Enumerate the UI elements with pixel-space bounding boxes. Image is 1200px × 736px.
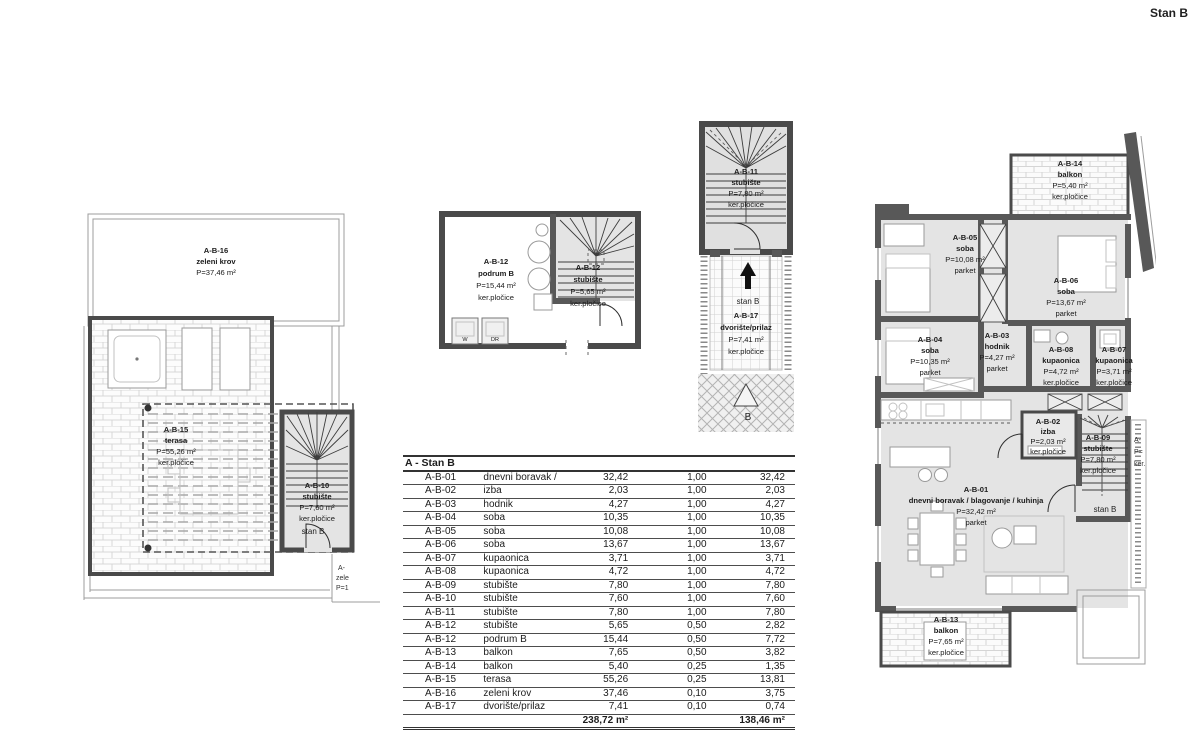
floor-plan-apartment: A-B-14 balkon P=5,40 m² ker.pločice xyxy=(862,128,1156,668)
svg-text:ker.pločice: ker.pločice xyxy=(928,648,964,657)
svg-text:A-: A- xyxy=(338,565,346,572)
svg-text:P=10,35 m²: P=10,35 m² xyxy=(910,357,950,366)
svg-text:A-B-02: A-B-02 xyxy=(1036,417,1060,426)
balcony-bottom: A-B-13 balkon P=7,65 m² ker.pločice xyxy=(881,612,1010,666)
svg-text:stubište: stubište xyxy=(302,492,331,501)
table-row: A-B-10stubište7,601,007,60 xyxy=(403,593,795,607)
svg-text:parket: parket xyxy=(986,364,1008,373)
table-row: A-B-02izba2,031,002,03 xyxy=(403,485,795,499)
table-row: A-B-12podrum B15,440,507,72 xyxy=(403,633,795,647)
svg-text:A-B-11: A-B-11 xyxy=(734,167,759,176)
svg-text:terasa: terasa xyxy=(165,436,188,445)
svg-text:A-B-12: A-B-12 xyxy=(484,257,508,266)
unit-marker: stan B xyxy=(302,527,325,536)
svg-text:stubište: stubište xyxy=(1083,444,1112,453)
terrace-area xyxy=(90,318,272,574)
svg-text:P=15,44 m²: P=15,44 m² xyxy=(476,281,516,290)
table-header-row: A - Stan B xyxy=(403,456,795,471)
floor-plan-basement: W DR A-B-12 podrum B P=15,44 m² ker.ploč… xyxy=(438,206,644,358)
dryer-box: DR xyxy=(482,318,508,344)
floor-plan-entrance: A-B-11 stubište P=7,80 m² ker.pločice st… xyxy=(696,116,796,440)
table-title: A - Stan B xyxy=(403,456,795,471)
room-label-green-roof: A-B-16 zeleni krov P=37,46 m² xyxy=(196,246,236,277)
svg-text:P=7,65 m²: P=7,65 m² xyxy=(928,637,964,646)
svg-text:A-B-01: A-B-01 xyxy=(964,485,989,494)
table-row: A-B-09stubište7,801,007,80 xyxy=(403,579,795,593)
svg-text:P=1: P=1 xyxy=(336,585,349,592)
svg-text:ker.pločice: ker.pločice xyxy=(728,347,764,356)
total-area: 238,72 m² xyxy=(560,714,638,729)
svg-text:ker.pločice: ker.pločice xyxy=(570,299,606,308)
svg-text:izba: izba xyxy=(1041,427,1057,436)
anchor-dot xyxy=(145,405,152,412)
svg-text:A-B-03: A-B-03 xyxy=(985,331,1009,340)
svg-text:W: W xyxy=(462,337,468,343)
table-row: A-B-13balkon7,650,503,82 xyxy=(403,647,795,661)
svg-text:ker.pločice: ker.pločice xyxy=(1096,378,1132,387)
table-row: A-B-15terasa55,260,2513,81 xyxy=(403,674,795,688)
svg-text:ker.pločice: ker.pločice xyxy=(1052,192,1088,201)
svg-text:parket: parket xyxy=(1055,309,1077,318)
svg-text:hodnik: hodnik xyxy=(985,342,1011,351)
svg-text:P=7,60 m²: P=7,60 m² xyxy=(299,503,335,512)
unit-marker: stan B xyxy=(1094,505,1117,514)
svg-text:A-B-05: A-B-05 xyxy=(953,233,978,242)
street-area: B xyxy=(698,374,794,432)
svg-text:balkon: balkon xyxy=(934,626,959,635)
svg-text:P=4,27 m²: P=4,27 m² xyxy=(979,353,1015,362)
svg-text:P=: P= xyxy=(1134,449,1143,456)
svg-text:P=7,80 m²: P=7,80 m² xyxy=(728,189,764,198)
svg-text:A-B-13: A-B-13 xyxy=(934,615,958,624)
svg-text:balkon: balkon xyxy=(1058,170,1083,179)
table-row: A-B-14balkon5,400,251,35 xyxy=(403,660,795,674)
svg-text:zeleni krov: zeleni krov xyxy=(196,257,236,266)
svg-text:dvorište/prilaz: dvorište/prilaz xyxy=(720,323,772,332)
svg-text:stubište: stubište xyxy=(573,275,602,284)
svg-text:A-B-07: A-B-07 xyxy=(1102,345,1126,354)
svg-text:P=2,03 m²: P=2,03 m² xyxy=(1030,437,1066,446)
block-marker: B xyxy=(745,412,752,423)
svg-text:parket: parket xyxy=(919,368,941,377)
area-table-body: A-B-01dnevni boravak / blagovanje / kuhi… xyxy=(403,471,795,715)
svg-text:podrum B: podrum B xyxy=(478,269,514,278)
area-table: A - Stan B A-B-01dnevni boravak / blagov… xyxy=(403,455,795,730)
svg-text:P=32,42 m²: P=32,42 m² xyxy=(956,507,996,516)
cropped-label: A- zele P=1 xyxy=(336,565,349,592)
table-row: A-B-07kupaonica3,711,003,71 xyxy=(403,552,795,566)
svg-text:A-B-14: A-B-14 xyxy=(1058,159,1083,168)
table-row: A-B-17dvorište/prilaz7,410,100,74 xyxy=(403,701,795,715)
svg-text:A-B-09: A-B-09 xyxy=(1086,433,1110,442)
svg-text:ker.pločice: ker.pločice xyxy=(728,200,764,209)
floor-plan-roof-terrace: A-B-10 stubište P=7,60 m² ker.pločice st… xyxy=(80,198,382,612)
svg-text:A-B-08: A-B-08 xyxy=(1049,345,1073,354)
entrance-stairwell: A-B-11 stubište P=7,80 m² ker.pločice xyxy=(702,124,790,254)
svg-text:ker.pločice: ker.pločice xyxy=(478,293,514,302)
svg-text:P=55,26 m²: P=55,26 m² xyxy=(156,447,196,456)
roof-stairwell: A-B-10 stubište P=7,60 m² ker.pločice st… xyxy=(282,412,352,552)
svg-text:P=5,40 m²: P=5,40 m² xyxy=(1052,181,1088,190)
svg-text:ker.pločice: ker.pločice xyxy=(299,514,335,523)
svg-text:P=13,67 m²: P=13,67 m² xyxy=(1046,298,1086,307)
table-row: A-B-04soba10,351,0010,35 xyxy=(403,512,795,526)
svg-text:P=37,46 m²: P=37,46 m² xyxy=(196,268,236,277)
svg-text:parket: parket xyxy=(954,266,976,275)
svg-text:ker.pločice: ker.pločice xyxy=(1080,466,1116,475)
anchor-dot xyxy=(145,545,152,552)
table-row: A-B-01dnevni boravak / blagovanje / kuhi… xyxy=(403,471,795,485)
table-row: A-B-12stubište5,650,502,82 xyxy=(403,620,795,634)
washer-box: W xyxy=(452,318,478,344)
page-title: Stan B xyxy=(1150,6,1188,20)
svg-text:P=4,72 m²: P=4,72 m² xyxy=(1043,367,1079,376)
svg-text:soba: soba xyxy=(1057,287,1076,296)
svg-text:A-B-16: A-B-16 xyxy=(204,246,228,255)
svg-text:ker.: ker. xyxy=(1134,461,1145,468)
svg-text:A-B-15: A-B-15 xyxy=(164,425,189,434)
svg-text:zele: zele xyxy=(336,575,349,582)
svg-text:P=5,65 m²: P=5,65 m² xyxy=(570,287,606,296)
svg-text:A-: A- xyxy=(1134,437,1142,444)
table-total-row: 238,72 m² 138,46 m² xyxy=(403,714,795,729)
svg-text:soba: soba xyxy=(956,244,975,253)
table-row: A-B-05soba10,081,0010,08 xyxy=(403,525,795,539)
table-row: A-B-11stubište7,801,007,80 xyxy=(403,606,795,620)
svg-text:parket: parket xyxy=(965,518,987,527)
svg-text:P=7,41 m²: P=7,41 m² xyxy=(728,335,764,344)
svg-text:ker.pločice: ker.pločice xyxy=(1043,378,1079,387)
svg-text:P=3,71 m²: P=3,71 m² xyxy=(1096,367,1132,376)
table-row: A-B-08kupaonica4,721,004,72 xyxy=(403,566,795,580)
unit-marker: stan B xyxy=(737,297,760,306)
svg-text:ker.pločice: ker.pločice xyxy=(1030,447,1066,456)
svg-text:A-B-17: A-B-17 xyxy=(734,311,758,320)
table-row: A-B-16zeleni krov37,460,103,75 xyxy=(403,687,795,701)
total-reduced-area: 138,46 m² xyxy=(717,714,795,729)
svg-text:ker.pločice: ker.pločice xyxy=(158,458,194,467)
table-row: A-B-03hodnik4,271,004,27 xyxy=(403,498,795,512)
svg-text:A-B-04: A-B-04 xyxy=(918,335,943,344)
svg-text:A-B-06: A-B-06 xyxy=(1054,276,1078,285)
svg-text:A-B-12: A-B-12 xyxy=(576,263,600,272)
table-row: A-B-06soba13,671,0013,67 xyxy=(403,539,795,553)
svg-text:A-B-10: A-B-10 xyxy=(305,481,329,490)
svg-text:kupaonica: kupaonica xyxy=(1042,356,1080,365)
svg-text:P=7,80 m²: P=7,80 m² xyxy=(1080,455,1116,464)
svg-text:soba: soba xyxy=(921,346,940,355)
balcony-top: A-B-14 balkon P=5,40 m² ker.pločice xyxy=(1011,155,1128,216)
svg-text:dnevni boravak / blagovanje /: dnevni boravak / blagovanje / kuhinja xyxy=(909,496,1044,505)
svg-text:stubište: stubište xyxy=(731,178,760,187)
svg-text:DR: DR xyxy=(491,337,499,343)
svg-text:P=10,08 m²: P=10,08 m² xyxy=(945,255,985,264)
skylight-center-dot xyxy=(135,357,138,360)
svg-text:kupaonica: kupaonica xyxy=(1095,356,1133,365)
